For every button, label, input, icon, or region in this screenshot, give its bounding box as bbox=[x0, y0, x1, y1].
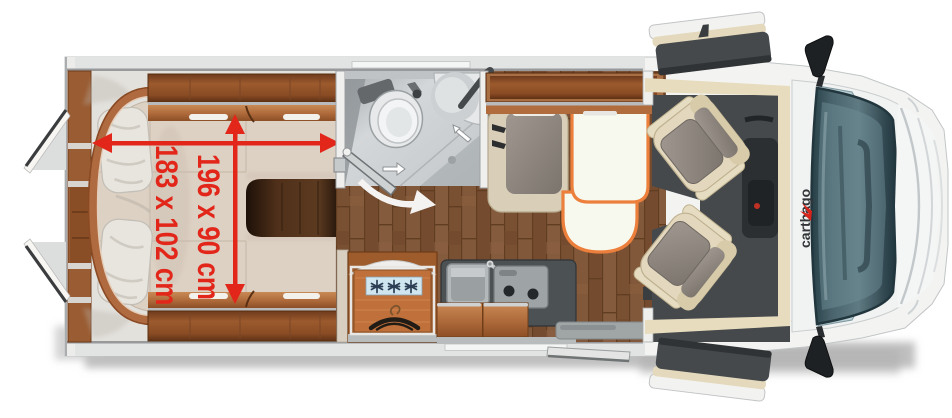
svg-text:196 x 90 cm: 196 x 90 cm bbox=[190, 154, 225, 300]
svg-text:183 x 102 cm: 183 x 102 cm bbox=[148, 145, 183, 305]
